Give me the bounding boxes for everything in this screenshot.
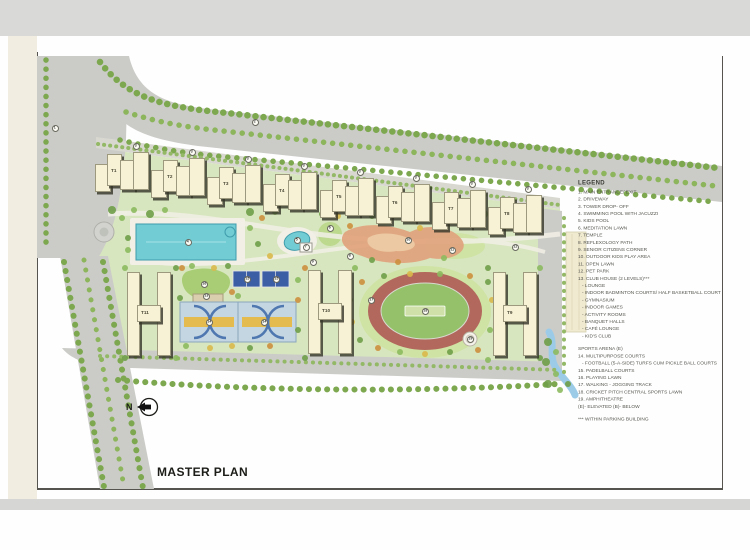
tower-t5-label: T5 (336, 195, 341, 200)
tower-t1: T1 (95, 150, 150, 196)
plan-marker: 15 (273, 276, 280, 283)
jacuzzi (225, 227, 235, 237)
legend-item: 11. OPEN LAWN (578, 261, 726, 268)
plan-marker: 8 (347, 253, 354, 260)
legend-item: - KID'S CLUB (578, 333, 726, 340)
tower-t8: T8 (488, 193, 543, 239)
legend-item: 19. AMPHITHEATRE (578, 397, 726, 404)
plan-marker: 3 (413, 175, 420, 182)
legend-title: LEGEND (578, 179, 726, 186)
plan-marker: 15 (244, 276, 251, 283)
legend-item: 12. PET PARK (578, 269, 726, 276)
legend-item: - INDOOR BADMINTON COURTS/ HALF BASKETBA… (578, 290, 726, 297)
legend: LEGEND 1. MAIN ENTRANCE/ EXIT2. DRIVEWAY… (578, 179, 726, 424)
plan-marker: 17 (368, 297, 375, 304)
plan-marker: 19 (467, 336, 474, 343)
tower-t3: T3 (207, 163, 262, 209)
legend-item: - CAFÉ LOUNGE (578, 326, 726, 333)
tower-t9: T9 (493, 272, 537, 356)
legend-item: 17. WALKING - JOGGING TRACK (578, 382, 726, 389)
tower-t2: T2 (151, 156, 206, 202)
tower-t7: T7 (432, 188, 487, 234)
tower-t2-label: T2 (167, 175, 172, 180)
legend-item: (E)- ELEVATED (B)- BELOW (578, 404, 726, 411)
legend-item: 16. PLAYING LAWN (578, 375, 726, 382)
plan-marker: 11 (449, 247, 456, 254)
legend-item: 3. TOWER DROP- OFF (578, 204, 726, 211)
tower-t9-label: T9 (507, 311, 512, 316)
legend-item: - GYMNASIUM (578, 297, 726, 304)
legend-item: 15. PADELBALL COURTS (578, 368, 726, 375)
legend-item: - LOUNGE (578, 283, 726, 290)
page-title: MASTER PLAN (157, 465, 248, 479)
roundabout-center (100, 228, 109, 237)
legend-item: 4. SWIMMING POOL WITH JACUZZI (578, 211, 726, 218)
plan-marker: 3 (189, 149, 196, 156)
tower-t8-label: T8 (504, 212, 509, 217)
legend-item: - INDOOR GAMES (578, 305, 726, 312)
plan-marker: 3 (245, 156, 252, 163)
legend-item: 1. MAIN ENTRANCE/ EXIT (578, 189, 726, 196)
tower-t1-label: T1 (111, 169, 116, 174)
tower-t5: T5 (320, 176, 375, 222)
legend-item: 7. TEMPLE (578, 233, 726, 240)
legend-item: SPORTS ARENA (E) (578, 346, 726, 353)
tower-t6-label: T6 (392, 201, 397, 206)
legend-item: 5. KIDS POOL (578, 218, 726, 225)
north-label: N (126, 402, 133, 412)
legend-item: *** WITHIN PARKING BUILDING (578, 417, 726, 424)
tower-t11: T11 (127, 272, 171, 356)
plan-marker: 5 (294, 237, 301, 244)
tower-t3-label: T3 (223, 182, 228, 187)
tower-t11-label: T11 (141, 311, 149, 316)
plan-marker: 3 (525, 186, 532, 193)
plan-marker: 2 (252, 119, 259, 126)
legend-item: - BANQUET HALLS (578, 319, 726, 326)
north-arrow: N (126, 396, 160, 418)
legend-item: 2. DRIVEWAY (578, 197, 726, 204)
tower-t4: T4 (263, 170, 318, 216)
plan-marker: 12 (512, 244, 519, 251)
legend-item: 10. OUTDOOR KIDS PLAY AREA (578, 254, 726, 261)
plan-marker: 3 (133, 143, 140, 150)
plan-marker: 16 (201, 281, 208, 288)
plan-marker: 3 (357, 169, 364, 176)
tower-t10-label: T10 (322, 309, 330, 314)
plan-marker: 1 (52, 125, 59, 132)
plan-marker: 18 (422, 308, 429, 315)
plan-marker: 9 (310, 259, 317, 266)
legend-item: 6. MEDITATION LAWN (578, 225, 726, 232)
tower-t6: T6 (376, 182, 431, 228)
plan-marker: 3 (301, 163, 308, 170)
plan-marker: 14 (206, 319, 213, 326)
tower-t10: T10 (308, 270, 352, 354)
plan-marker: 13 (203, 293, 210, 300)
legend-item: 13. CLUB HOUSE (2 LEVELS)*** (578, 276, 726, 283)
legend-item: 8. REFLEXOLOGY PATH (578, 240, 726, 247)
plan-marker: 6 (327, 225, 334, 232)
legend-item: 18. CRICKET PITCH CENTRAL SPORTS LAWN (578, 389, 726, 396)
tower-t7-label: T7 (448, 207, 453, 212)
north-arrow-icon (136, 396, 160, 418)
plan-marker: 14 (261, 319, 268, 326)
legend-item: - ACTIVITY ROOMS (578, 312, 726, 319)
legend-item: 9. SENIOR CITIZENS CORNER (578, 247, 726, 254)
legend-items: 1. MAIN ENTRANCE/ EXIT2. DRIVEWAY3. TOWE… (578, 189, 726, 423)
plan-marker: 4 (185, 239, 192, 246)
tower-t4-label: T4 (279, 189, 284, 194)
plan-marker: 10 (405, 237, 412, 244)
master-plan-page: T1 T2 T3 T4 T5 T6 T7 T8 T11 T10 T9 12333… (0, 0, 750, 550)
legend-item: - FOOTBALL (5-A-SIDE) TURFS CUM PICKLE B… (578, 361, 726, 368)
plan-marker: 7 (303, 244, 310, 251)
plan-marker: 3 (469, 181, 476, 188)
legend-item: 14. MULTIPURPOSE COURTS (578, 353, 726, 360)
